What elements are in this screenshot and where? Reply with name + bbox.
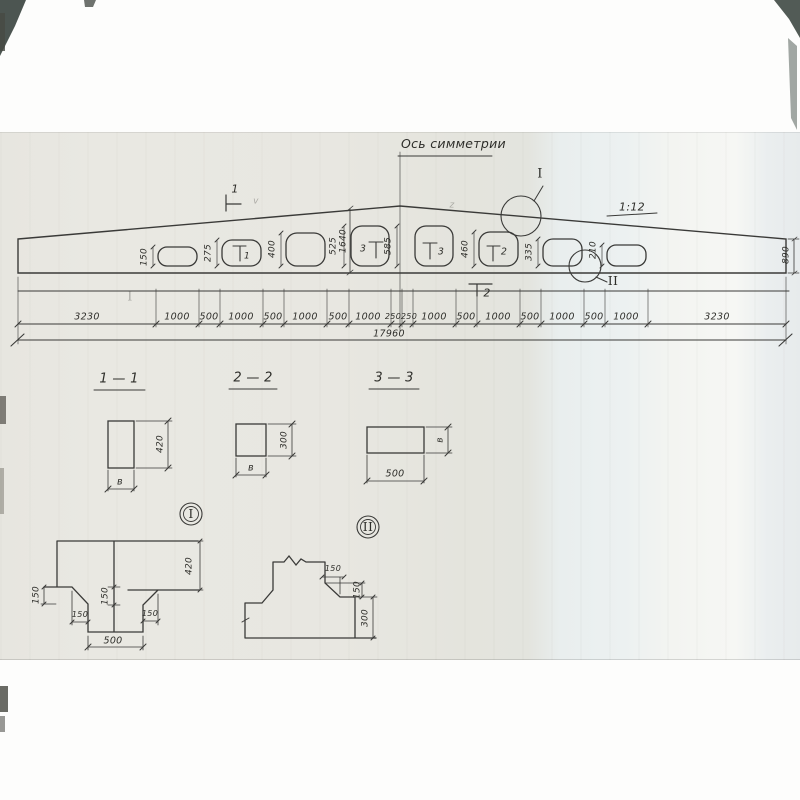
pencil-ghost-mark: I	[127, 291, 132, 304]
detail-ii-dim-300: 300	[362, 609, 371, 627]
detail-i-dim-500: 500	[103, 636, 122, 646]
section-2-2-height: 300	[281, 431, 290, 449]
detail-i-dim-420: 420	[186, 557, 195, 575]
dim-chain-2: 500	[199, 312, 218, 322]
detail-marker-ii-label: II	[608, 275, 618, 288]
dim-chain-6: 500	[328, 312, 347, 322]
detail-ii-dim-150-top: 150	[325, 565, 341, 573]
section-flag-1-label: 1	[231, 184, 238, 195]
dim-chain-10: 1000	[421, 312, 446, 322]
pencil-check-mark: z	[449, 202, 454, 211]
dim-chain-12: 1000	[485, 312, 510, 322]
detail-i-dim-150-left: 150	[33, 586, 42, 604]
dim-chain-7: 1000	[355, 312, 380, 322]
mid-opening-height-585: 585	[385, 237, 394, 255]
dim-chain-1: 1000	[164, 312, 189, 322]
opening-height-150: 150	[141, 248, 150, 266]
flag-digit-opening-5: 3	[438, 247, 444, 257]
detail-i-dim-150-mid: 150	[102, 587, 111, 605]
text-labels: Ось симметрии 1:12 1 2 1 3 3 2 I II 150 …	[0, 0, 800, 800]
section-2-2-title: 2 — 2	[233, 372, 272, 385]
slope-label: 1:12	[619, 202, 645, 213]
section-1-1-height: 420	[157, 435, 166, 453]
scanned-drawing-sheet: Ось симметрии 1:12 1 2 1 3 3 2 I II 150 …	[0, 0, 800, 800]
opening-height-460: 460	[462, 240, 471, 258]
dim-chain-15: 500	[584, 312, 603, 322]
dim-chain-14: 1000	[549, 312, 574, 322]
axis-of-symmetry-title: Ось симметрии	[401, 138, 506, 151]
opening-height-210: 210	[590, 241, 599, 259]
dim-chain-4: 500	[263, 312, 282, 322]
section-3-3-width: 500	[385, 469, 404, 479]
dim-chain-8: 250	[385, 313, 401, 321]
dim-chain-0: 3230	[74, 312, 99, 322]
end-height-label: 890	[783, 246, 792, 264]
flag-digit-opening-2: 1	[244, 253, 250, 262]
section-flag-2-label: 2	[483, 288, 490, 299]
opening-height-335: 335	[526, 243, 535, 261]
section-2-2-width: в	[248, 463, 254, 473]
flag-digit-opening-6: 2	[501, 247, 507, 257]
section-1-1-title: 1 — 1	[99, 373, 138, 386]
opening-height-275: 275	[205, 244, 214, 262]
opening-height-525: 525	[330, 237, 339, 255]
dim-chain-17: 3230	[704, 312, 729, 322]
detail-marker-i-label: I	[537, 168, 542, 181]
flag-digit-opening-4: 3	[360, 244, 366, 254]
dim-chain-9: 250	[401, 313, 417, 321]
dim-chain-11: 500	[456, 312, 475, 322]
detail-i-circle-label: I	[188, 508, 193, 521]
pencil-check-mark: v	[253, 198, 259, 207]
dim-chain-5: 1000	[292, 312, 317, 322]
section-3-3-height: в	[437, 437, 446, 443]
dim-chain-16: 1000	[613, 312, 638, 322]
dim-chain-13: 500	[520, 312, 539, 322]
dim-chain-3: 1000	[228, 312, 253, 322]
section-3-3-title: 3 — 3	[374, 372, 413, 385]
detail-ii-dim-150-side: 150	[354, 581, 363, 599]
opening-height-400: 400	[269, 240, 278, 258]
section-1-1-width: в	[117, 477, 123, 487]
detail-i-dim-150-chamfer-l: 150	[72, 611, 88, 619]
ridge-height-label: 1640	[340, 229, 349, 253]
detail-ii-circle-label: II	[363, 521, 373, 534]
detail-i-dim-150-chamfer-r: 150	[142, 610, 158, 618]
overall-length-label: 17960	[373, 329, 405, 339]
